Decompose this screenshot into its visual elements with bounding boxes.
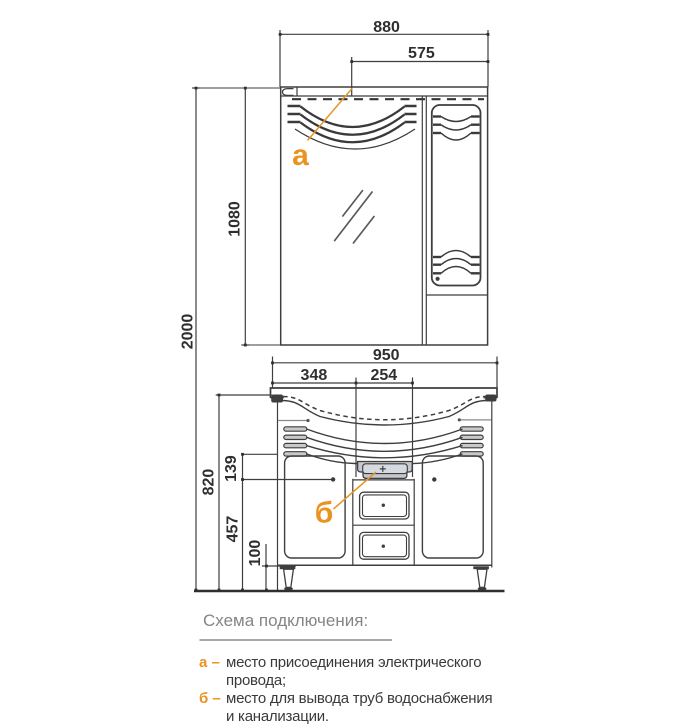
- svg-text:а –: а –: [199, 654, 220, 671]
- svg-text:б –: б –: [199, 690, 221, 707]
- svg-text:и канализации.: и канализации.: [226, 708, 329, 725]
- svg-text:Схема подключения:: Схема подключения:: [203, 611, 368, 630]
- svg-text:б: б: [315, 497, 334, 530]
- svg-text:457: 457: [224, 516, 241, 543]
- svg-text:место присоединения электричес: место присоединения электрического: [226, 654, 481, 671]
- svg-text:880: 880: [373, 19, 400, 36]
- svg-text:348: 348: [301, 367, 328, 384]
- svg-text:950: 950: [373, 347, 400, 364]
- svg-text:100: 100: [247, 540, 264, 567]
- svg-text:2000: 2000: [179, 314, 196, 350]
- svg-text:254: 254: [370, 367, 397, 384]
- svg-text:575: 575: [408, 45, 435, 62]
- svg-text:провода;: провода;: [226, 672, 286, 689]
- svg-text:1080: 1080: [227, 201, 244, 237]
- svg-text:место для вывода труб водоснаб: место для вывода труб водоснабжения: [226, 690, 492, 707]
- svg-text:139: 139: [223, 455, 240, 482]
- svg-text:а: а: [292, 139, 309, 172]
- svg-text:820: 820: [201, 469, 218, 496]
